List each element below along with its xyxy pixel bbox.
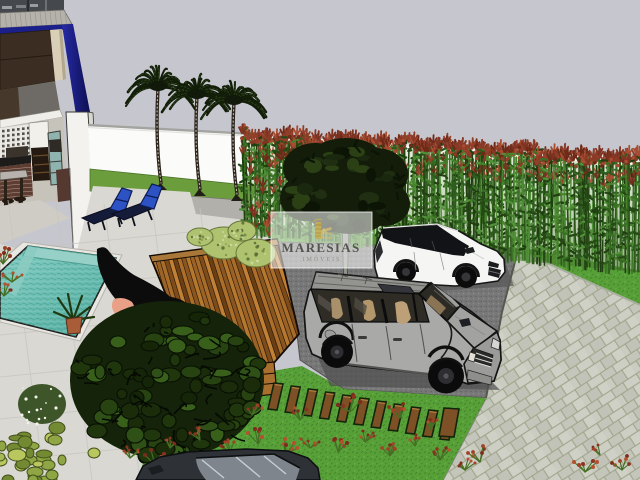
svg-text:MARESIAS: MARESIAS (281, 240, 360, 255)
svg-text:IMÓVEIS: IMÓVEIS (303, 255, 342, 263)
